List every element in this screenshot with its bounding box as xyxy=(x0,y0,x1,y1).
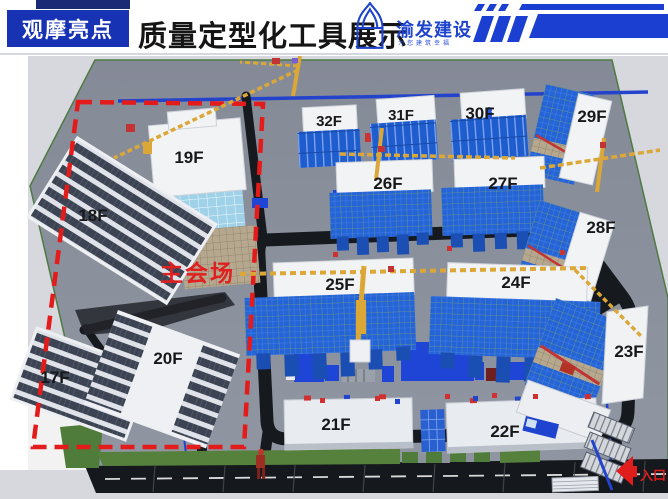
main-venue-label: 主会场 xyxy=(160,260,235,286)
building-label-22f: 22F xyxy=(490,422,519,441)
company-slogan: 为您建筑幸福 xyxy=(398,38,452,47)
header-stripes-decoration xyxy=(468,2,668,46)
building-label-26f: 26F xyxy=(373,174,402,193)
badge-top-strip xyxy=(36,0,130,9)
building-label-20f: 20F xyxy=(153,349,182,368)
site-plan-render: 入口 32F 31F 30F 29F 26F 27F 28F 19F 18F 2… xyxy=(0,0,668,499)
building-label-32f: 32F xyxy=(316,113,342,130)
slide: 入口 32F 31F 30F 29F 26F 27F 28F 19F 18F 2… xyxy=(0,0,668,499)
slide-header: 观摩亮点 质量定型化工具展示 渝发建设 为您建筑幸福 xyxy=(0,0,668,56)
building-label-28f: 28F xyxy=(586,218,615,237)
section-badge: 观摩亮点 xyxy=(7,10,129,47)
building-30f xyxy=(448,89,529,162)
building-label-25f: 25F xyxy=(325,275,354,294)
building-label-23f: 23F xyxy=(614,342,643,361)
building-label-30f: 30F xyxy=(465,104,494,123)
building-label-19f: 19F xyxy=(174,148,203,167)
building-label-24f: 24F xyxy=(501,273,530,292)
company-logo-icon xyxy=(350,2,392,52)
building-label-29f: 29F xyxy=(577,107,606,126)
header-divider xyxy=(0,53,668,55)
building-label-27f: 27F xyxy=(488,174,517,193)
company-logo: 渝发建设 为您建筑幸福 xyxy=(350,2,470,54)
panel-stack xyxy=(552,476,598,492)
building-label-18f: 18F xyxy=(78,206,107,225)
entrance-label: 入口 xyxy=(640,468,666,483)
building-label-17f: 17F xyxy=(40,368,69,387)
building-label-31f: 31F xyxy=(388,107,414,124)
building-label-21f: 21F xyxy=(321,415,350,434)
